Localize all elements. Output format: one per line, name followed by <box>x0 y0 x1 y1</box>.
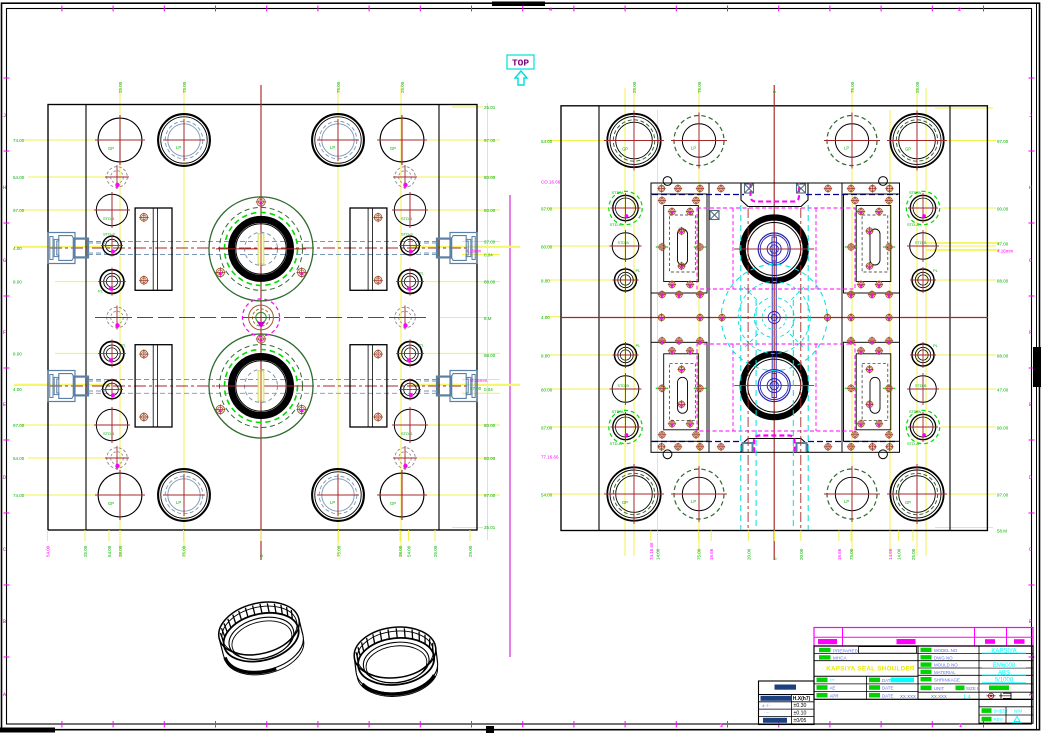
svg-text:±0.30: ±0.30 <box>794 703 807 709</box>
svg-text:D: D <box>3 475 6 481</box>
svg-text:STD-B: STD-B <box>915 241 927 245</box>
svg-text:LP: LP <box>176 500 181 505</box>
svg-text:8.00: 8.00 <box>13 280 22 285</box>
svg-text:2: 2 <box>958 7 961 13</box>
svg-text:C: C <box>3 547 6 553</box>
svg-text:4.00: 4.00 <box>13 246 22 251</box>
svg-text:75.00: 75.00 <box>336 81 341 93</box>
svg-text:***: *** <box>830 678 835 683</box>
svg-text:80.00: 80.00 <box>484 456 496 461</box>
svg-text:74.00: 74.00 <box>13 138 25 143</box>
svg-text:16.66: 16.66 <box>837 548 842 560</box>
svg-text:STD-B: STD-B <box>618 241 630 245</box>
svg-text:STD-A: STD-A <box>907 222 919 227</box>
svg-text:PL: PL <box>98 289 104 294</box>
svg-text:LP: LP <box>844 499 849 504</box>
svg-text:DWG NO: DWG NO <box>934 655 953 660</box>
svg-text:8.00: 8.00 <box>13 351 22 356</box>
svg-text:REV: REV <box>994 717 1003 722</box>
svg-text:97.00: 97.00 <box>997 139 1009 144</box>
svg-text:47.00: 47.00 <box>997 388 1009 393</box>
svg-text:STD-A: STD-A <box>610 222 622 227</box>
svg-text:25.01: 25.01 <box>484 525 496 530</box>
svg-text:4.16mm: 4.16mm <box>997 249 1014 254</box>
svg-text:STD-1: STD-1 <box>103 431 115 436</box>
svg-text:25.00: 25.00 <box>118 81 123 93</box>
svg-text:4: 4 <box>549 7 552 13</box>
svg-text:XX.XXX: XX.XXX <box>931 694 947 699</box>
svg-text:GP: GP <box>390 501 396 506</box>
svg-text:G: G <box>1029 258 1032 264</box>
svg-text:0.04: 0.04 <box>484 253 493 258</box>
svg-text:STD-A: STD-A <box>612 409 624 414</box>
svg-text:97.00: 97.00 <box>13 208 25 213</box>
svg-text:C: C <box>1029 547 1032 553</box>
svg-text:88.00: 88.00 <box>484 353 496 358</box>
svg-text:25.00: 25.00 <box>83 545 88 557</box>
svg-text:8.00: 8.00 <box>541 354 550 359</box>
svg-text:F: F <box>3 330 6 336</box>
svg-text:25.00: 25.00 <box>433 545 438 557</box>
svg-text:STD-B: STD-B <box>915 384 927 388</box>
svg-text:PL: PL <box>636 268 642 273</box>
svg-text:97.00: 97.00 <box>541 207 553 212</box>
svg-text:MOULD NO: MOULD NO <box>934 663 958 668</box>
svg-text:A: A <box>1029 692 1032 698</box>
svg-text:97.00: 97.00 <box>997 493 1009 498</box>
svg-text:4.00: 4.00 <box>541 315 550 320</box>
svg-text:GP: GP <box>905 500 911 505</box>
svg-text:LP: LP <box>691 499 696 504</box>
svg-text:E: E <box>3 402 6 408</box>
svg-text:54.00: 54.00 <box>541 493 553 498</box>
svg-text:54.00: 54.00 <box>46 545 51 557</box>
svg-text:88.00: 88.00 <box>997 354 1009 359</box>
svg-text:B: B <box>3 619 6 625</box>
svg-text:PREPARED: PREPARED <box>833 648 859 653</box>
svg-text:±0.10: ±0.10 <box>794 711 807 717</box>
svg-text:D: D <box>1029 475 1032 481</box>
svg-text:4.16mm: 4.16mm <box>466 249 482 254</box>
svg-text:80.00: 80.00 <box>541 388 553 393</box>
svg-text:STD-A: STD-A <box>909 409 921 414</box>
svg-text:MODEL NO: MODEL NO <box>934 648 958 653</box>
svg-text:29.00: 29.00 <box>468 545 473 557</box>
svg-text:75.00: 75.00 <box>849 548 854 560</box>
svg-text:SIZE B: SIZE B <box>966 686 980 691</box>
svg-text:4.00: 4.00 <box>13 387 22 392</box>
svg-text:25.00: 25.00 <box>632 81 637 93</box>
svg-text:GP: GP <box>108 501 114 506</box>
svg-text:97.00: 97.00 <box>541 426 553 431</box>
svg-text:38.00: 38.00 <box>118 545 123 557</box>
svg-text:3: 3 <box>720 723 723 729</box>
svg-text:MATERIAL: MATERIAL <box>934 670 956 675</box>
svg-text:1:4: 1:4 <box>963 695 971 701</box>
svg-text:H: H <box>3 185 6 191</box>
svg-text:97.00: 97.00 <box>484 240 496 245</box>
svg-text:75.00: 75.00 <box>850 81 855 93</box>
svg-text:STD-A: STD-A <box>907 441 919 446</box>
svg-text:UNIT: UNIT <box>934 686 945 691</box>
svg-text:AE: AE <box>830 686 836 691</box>
svg-text:STD-A: STD-A <box>612 190 624 195</box>
svg-text:F: F <box>1029 330 1032 336</box>
svg-text:LP: LP <box>844 146 849 151</box>
svg-text:STD-1: STD-1 <box>103 216 115 221</box>
svg-text:77.16.66: 77.16.66 <box>541 455 559 460</box>
svg-text:E: E <box>1029 402 1032 408</box>
svg-text:STD-3: STD-3 <box>401 232 413 237</box>
svg-text:54.00: 54.00 <box>541 139 553 144</box>
svg-text:25.01: 25.01 <box>484 105 496 110</box>
svg-text:1: 1 <box>959 723 962 729</box>
svg-text:LP: LP <box>330 500 335 505</box>
svg-text:80.00: 80.00 <box>484 208 496 213</box>
svg-text:GP: GP <box>108 146 114 151</box>
svg-text:80.00: 80.00 <box>484 423 496 428</box>
svg-text:90.00: 90.00 <box>997 426 1009 431</box>
svg-text:25.00: 25.00 <box>911 548 916 560</box>
svg-text:APR: APR <box>830 693 839 698</box>
svg-text:80.00: 80.00 <box>541 245 553 250</box>
svg-text:54.00: 54.00 <box>13 456 25 461</box>
svg-text:74.16.66: 74.16.66 <box>649 542 654 560</box>
svg-text:58.M: 58.M <box>997 529 1007 534</box>
svg-text:H: H <box>1029 185 1032 191</box>
svg-text:75.00: 75.00 <box>697 81 702 93</box>
svg-text:90.00: 90.00 <box>997 207 1009 212</box>
svg-text:75.00: 75.00 <box>697 548 702 560</box>
svg-text:25.00: 25.00 <box>915 81 920 93</box>
svg-text:75.00: 75.00 <box>182 545 187 557</box>
svg-text:±··/··: ±··/·· <box>762 703 771 708</box>
svg-text:MHCA: MHCA <box>833 656 847 661</box>
svg-text:14.00: 14.00 <box>656 548 661 560</box>
svg-text:XX.XXX: XX.XXX <box>900 694 916 699</box>
svg-text:74.00: 74.00 <box>13 493 25 498</box>
svg-text:STD-1: STD-1 <box>401 431 413 436</box>
svg-text:LP: LP <box>176 145 181 150</box>
svg-text:B: B <box>1029 619 1032 625</box>
svg-text:GP: GP <box>622 147 628 152</box>
svg-text:SHRINKAGE: SHRINKAGE <box>934 677 960 682</box>
svg-text:EM6008: EM6008 <box>993 663 1016 669</box>
svg-text:75.00: 75.00 <box>182 81 187 93</box>
svg-text:5/1000: 5/1000 <box>995 678 1014 684</box>
svg-text:75.00: 75.00 <box>337 545 342 557</box>
svg-text:88.00: 88.00 <box>997 279 1009 284</box>
svg-text:0.04: 0.04 <box>484 387 493 392</box>
svg-text:GP: GP <box>905 147 911 152</box>
svg-text:8.M: 8.M <box>484 316 492 321</box>
svg-text:20.00: 20.00 <box>799 548 804 560</box>
svg-text:CO.16.66: CO.16.66 <box>541 180 561 185</box>
svg-text:97.00: 97.00 <box>484 138 496 143</box>
svg-text:····: ···· <box>764 710 770 715</box>
svg-text:80.00: 80.00 <box>484 175 496 180</box>
svg-text:J: J <box>1029 113 1032 119</box>
svg-text:PL: PL <box>419 271 425 276</box>
svg-text:G: G <box>3 258 6 264</box>
svg-text:97.00: 97.00 <box>484 493 496 498</box>
svg-text:LP: LP <box>691 146 696 151</box>
svg-text:PL: PL <box>419 342 425 347</box>
svg-text:88.00: 88.00 <box>484 280 496 285</box>
svg-text:LP: LP <box>330 145 335 150</box>
svg-text:54.00: 54.00 <box>13 175 25 180</box>
svg-text:A: A <box>3 692 6 698</box>
svg-text:57.00: 57.00 <box>470 386 482 391</box>
svg-text:14.00: 14.00 <box>897 548 902 560</box>
svg-text:STD-3: STD-3 <box>103 232 115 237</box>
svg-text:TOP: TOP <box>512 58 529 69</box>
svg-text:PL: PL <box>933 343 939 348</box>
svg-text:KAPSIYA SEAL SHOULDER: KAPSIYA SEAL SHOULDER <box>826 665 915 672</box>
svg-text:GP: GP <box>390 146 396 151</box>
svg-text:SHEET: SHEET <box>994 709 1009 714</box>
svg-text:PL: PL <box>933 268 939 273</box>
svg-text:47.00: 47.00 <box>997 242 1009 247</box>
svg-text:54.00: 54.00 <box>407 545 412 557</box>
svg-text:DATE: DATE <box>882 686 893 691</box>
svg-text:PL: PL <box>636 343 642 348</box>
svg-text:16.66: 16.66 <box>709 548 714 560</box>
svg-text:±0/05: ±0/05 <box>794 718 807 724</box>
svg-text:GP: GP <box>622 500 628 505</box>
svg-text:STD-B: STD-B <box>618 384 630 388</box>
svg-text:20.00: 20.00 <box>746 548 751 560</box>
svg-text:DATE: DATE <box>882 693 893 698</box>
svg-text:STD-A: STD-A <box>909 190 921 195</box>
svg-text:54.00: 54.00 <box>107 545 112 557</box>
svg-text:38.00: 38.00 <box>398 545 403 557</box>
svg-text:H.X(h7): H.X(h7) <box>793 696 811 702</box>
svg-text:KAPSIYA: KAPSIYA <box>991 648 1016 654</box>
svg-text:N/M: N/M <box>1014 709 1022 714</box>
svg-text:ABS: ABS <box>998 670 1010 676</box>
svg-text:8.00: 8.00 <box>541 279 550 284</box>
svg-text:J: J <box>3 113 6 119</box>
svg-text:STD-1: STD-1 <box>401 216 413 221</box>
svg-text:97.00: 97.00 <box>13 423 25 428</box>
svg-text:PL: PL <box>121 342 127 347</box>
svg-text:STD-A: STD-A <box>610 441 622 446</box>
svg-text:Ø.16mm: Ø.16mm <box>470 378 488 383</box>
svg-text:25.00: 25.00 <box>400 81 405 93</box>
svg-text:14.66: 14.66 <box>888 548 893 560</box>
